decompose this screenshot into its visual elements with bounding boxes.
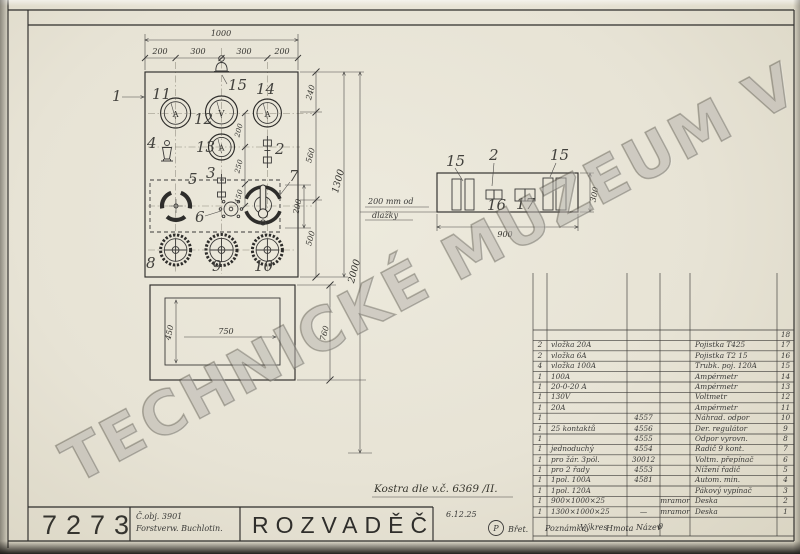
cell-name: Řadič 9 kont.: [690, 444, 777, 454]
cell-qty: 1: [533, 444, 547, 454]
dim-750: 750: [218, 327, 233, 336]
cell-no: 5: [777, 465, 794, 475]
callout-8: 8: [146, 254, 156, 272]
cell-qty: 1: [533, 434, 547, 444]
cell-no: 11: [777, 403, 794, 413]
plan-dim-900: 900: [497, 230, 512, 239]
cell-dwg: 4557: [627, 413, 660, 423]
plan-note-line2: dlažky: [372, 211, 399, 220]
cell-qty: 1: [533, 486, 547, 496]
dim-1000: 1000: [211, 29, 231, 38]
cell-name: Deska: [690, 496, 777, 506]
cell-spec: 1pol. 120A: [547, 486, 627, 496]
table-row: 1 100A Ampérmetr 14: [533, 372, 794, 382]
dim-200-switch: 200: [291, 198, 303, 216]
cell-no: 12: [777, 392, 794, 402]
callout-10: 10: [254, 257, 274, 275]
cell-spec: vložka 100A: [547, 361, 627, 371]
kostra-text: Kostra dle v.č. 6369 /II.: [373, 482, 498, 495]
cell-name: Odpor vyrovn.: [690, 434, 777, 444]
dim-2000: 2000: [346, 258, 363, 285]
cell-qty: 1: [533, 382, 547, 392]
cell-no: 8: [777, 434, 794, 444]
table-row: 1 20-0-20 A Ampérmetr 13: [533, 382, 794, 392]
cell-name: Pákový vypínač: [690, 486, 777, 496]
cell-qty: 1: [533, 392, 547, 402]
callout-4: 4: [146, 134, 157, 152]
cell-no: 14: [777, 372, 794, 382]
table-footer-zero: 0: [658, 522, 663, 531]
table-row: 1 25 kontaktů 4556 Der. regulátor 9: [533, 424, 794, 434]
cell-name: Ampérmetr: [690, 372, 777, 382]
table-row: 1 1pol. 100A 4581 Autom. min. 4: [533, 475, 794, 485]
cell-no: 15: [777, 361, 794, 371]
cell-qty: 1: [533, 455, 547, 465]
cell-name: Deska: [690, 507, 777, 517]
dim-i250: 250: [232, 158, 245, 175]
cell-no: 7: [777, 444, 794, 454]
table-row: 2 vložka 6A Pojistka T2 15 16: [533, 351, 794, 361]
drawing-title: ROZVADĚČ: [252, 511, 434, 538]
cell-spec: 1300×1000×25: [547, 507, 627, 517]
cell-qty: 1: [533, 413, 547, 423]
cell-qty: 1: [533, 465, 547, 475]
dim-seg4: 200: [273, 47, 289, 56]
table-row: 1 pro žár. 3pól. 30012 Voltm. přepínač 6: [533, 455, 794, 465]
plan-note-line1: 200 mm od: [367, 197, 413, 206]
cell-spec: pro žár. 3pól.: [547, 455, 627, 465]
plan-callout-17: 17: [516, 195, 536, 213]
cell-qty: 1: [533, 403, 547, 413]
cell-name: Trubk. poj. 120A: [690, 361, 777, 371]
callout-13: 13: [196, 138, 215, 156]
cell-spec: vložka 6A: [547, 351, 627, 361]
callout-7: 7: [289, 167, 299, 185]
fuse-2: [263, 136, 271, 168]
cell-name: Pojistka T425: [690, 340, 777, 350]
cell-spec: vložka 20A: [547, 340, 627, 350]
cell-name: Der. regulátor: [690, 424, 777, 434]
plan-callout-16: 16: [487, 196, 507, 214]
table-row: 4 vložka 100A Trubk. poj. 120A 15: [533, 361, 794, 371]
callout-3: 3: [206, 164, 216, 182]
cell-qty: 1: [533, 496, 547, 506]
cell-name: Voltm. přepínač: [690, 455, 777, 465]
cell-qty: 1: [533, 475, 547, 485]
cell-no: 4: [777, 475, 794, 485]
plan-view: 15 2 15 16 17 900 300 200 mm od dlažky: [360, 146, 601, 239]
callout-15: 15: [228, 76, 247, 94]
kostra-note: Kostra dle v.č. 6369 /II.: [372, 482, 513, 497]
cell-spec: pro 2 řady: [547, 465, 627, 475]
plan-callout-2: 2: [488, 146, 499, 164]
handwheel-8: [161, 235, 191, 265]
parts-table-rows: 18 2 vložka 20A Pojistka T425 17 2 vložk…: [533, 330, 794, 517]
cell-no: 16: [777, 351, 794, 361]
cell-no: 10: [777, 413, 794, 423]
dim-seg1: 200: [151, 47, 167, 56]
cell-name: Nížení řadič: [690, 465, 777, 475]
dim-seg3: 300: [236, 47, 251, 56]
callout-1: 1: [112, 87, 122, 105]
table-row: 1 1300×1000×25 — mramor Deska 1: [533, 507, 794, 517]
rheostat-5: [162, 193, 190, 220]
cell-name: Autom. min.: [690, 475, 777, 485]
dim-760: 760: [318, 325, 331, 342]
stamp-letter: P: [492, 524, 499, 533]
dim-1300: 1300: [330, 168, 347, 194]
cell-dwg: 4554: [627, 444, 660, 454]
meter-letter: A: [217, 144, 225, 154]
table-row: 1 130V Voltmetr 12: [533, 392, 794, 402]
cell-spec: 20A: [547, 403, 627, 413]
dim-i200: 200: [232, 122, 245, 139]
cell-dwg: 4555: [627, 434, 660, 444]
callout-9: 9: [212, 257, 222, 275]
dim-560: 560: [304, 147, 317, 164]
callout-2: 2: [274, 140, 285, 158]
cell-spec: 100A: [547, 372, 627, 382]
plan-callout-15l: 15: [446, 152, 465, 170]
scanned-technical-drawing: A V A A: [0, 0, 800, 554]
table-row: 1 4557 Náhrad. odpor 10: [533, 413, 794, 423]
cell-spec: jednoduchý: [547, 444, 627, 454]
meter-letter: V: [217, 109, 225, 119]
cell-name: Pojistka T2 15: [690, 351, 777, 361]
cell-qty: 1: [533, 372, 547, 382]
table-row: 1 pro 2 řady 4553 Nížení řadič 5: [533, 465, 794, 475]
cell-spec: 900×1000×25: [547, 496, 627, 506]
order-number: Č.obj. 3901: [136, 512, 182, 521]
cell-dwg: 30012: [627, 455, 660, 465]
cell-name: Náhrad. odpor: [690, 413, 777, 423]
cell-mat: mramor: [660, 496, 690, 506]
dim-seg2: 300: [190, 47, 205, 56]
plan-callout-15r: 15: [550, 146, 569, 164]
cell-mat: mramor: [660, 507, 690, 517]
table-row: 1 1pol. 120A Pákový vypínač 3: [533, 486, 794, 496]
cell-qty: 2: [533, 340, 547, 350]
table-row: 1 jednoduchý 4554 Řadič 9 kont. 7: [533, 444, 794, 454]
table-footer-dwg: Výkres: [580, 523, 607, 532]
cell-spec: 130V: [547, 392, 627, 402]
cell-spec: 20-0-20 A: [547, 382, 627, 392]
cell-qty: 1: [533, 507, 547, 517]
cell-no: 13: [777, 382, 794, 392]
drawing-number: 7273: [42, 510, 138, 540]
dim-500: 500: [304, 230, 317, 247]
callout-14: 14: [256, 80, 275, 98]
meter-letter: A: [172, 110, 180, 120]
cell-no: 6: [777, 455, 794, 465]
table-row: 2 vložka 20A Pojistka T425 17: [533, 340, 794, 350]
signature: Břet.: [507, 525, 528, 534]
dim-240: 240: [304, 84, 317, 102]
cell-qty: 2: [533, 351, 547, 361]
fuse-3: [218, 174, 226, 200]
cell-no: 1: [777, 507, 794, 517]
cell-name: Ampérmetr: [690, 382, 777, 392]
date: 6.12.25: [446, 510, 477, 519]
cell-no: 18: [777, 330, 794, 340]
cell-spec: 25 kontaktů: [547, 424, 627, 434]
dim-i150: 150: [232, 188, 244, 204]
table-row: 1 900×1000×25 mramor Deska 2: [533, 496, 794, 506]
table-row: 1 20A Ampérmetr 11: [533, 403, 794, 413]
fuse-4: [161, 141, 173, 162]
cell-dwg: 4581: [627, 475, 660, 485]
table-row: 1 4555 Odpor vyrovn. 8: [533, 434, 794, 444]
cell-no: 17: [777, 340, 794, 350]
cell-no: 9: [777, 424, 794, 434]
cell-no: 2: [777, 496, 794, 506]
cell-qty: 4: [533, 361, 547, 371]
callout-5: 5: [188, 170, 198, 188]
switch-7: [246, 185, 280, 225]
cell-name: Voltmetr: [690, 392, 777, 402]
callout-11: 11: [152, 85, 171, 103]
cell-dwg: 4556: [627, 424, 660, 434]
cell-dwg: 4553: [627, 465, 660, 475]
cell-name: Ampérmetr: [690, 403, 777, 413]
dim-450: 450: [163, 324, 175, 342]
cell-qty: 1: [533, 424, 547, 434]
meter-letter: A: [263, 110, 271, 120]
callout-12: 12: [194, 110, 213, 128]
plan-dim-300: 300: [589, 186, 601, 203]
table-row: 18: [533, 330, 794, 340]
title-block: 7273 Č.obj. 3901 Forstverw. Buchlotin. R…: [28, 507, 528, 541]
callout-6: 6: [195, 208, 205, 226]
cell-spec: 1pol. 100A: [547, 475, 627, 485]
table-footer-mat: Hmota: [605, 524, 634, 533]
customer: Forstverw. Buchlotin.: [135, 524, 223, 533]
cell-no: 3: [777, 486, 794, 496]
cell-dwg: —: [627, 507, 660, 517]
